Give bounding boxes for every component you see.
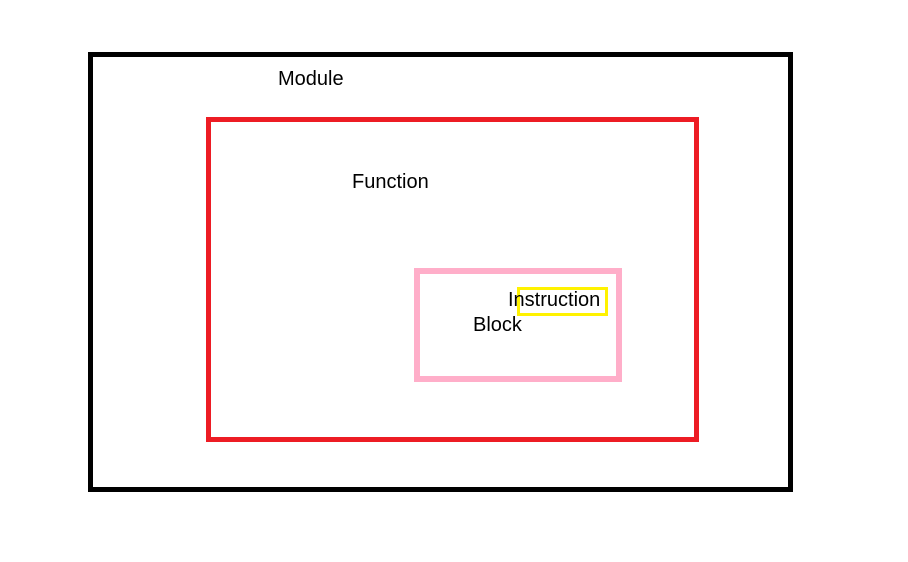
function-box: Function Instruction Block — [206, 117, 699, 442]
function-label: Function — [352, 171, 429, 193]
module-label: Module — [278, 68, 344, 90]
diagram-canvas: Module Function Instruction Block — [0, 0, 908, 562]
block-box: Instruction Block — [414, 268, 622, 382]
module-box: Module Function Instruction Block — [88, 52, 793, 492]
instruction-label: Instruction — [508, 289, 600, 311]
block-label: Block — [473, 314, 522, 336]
